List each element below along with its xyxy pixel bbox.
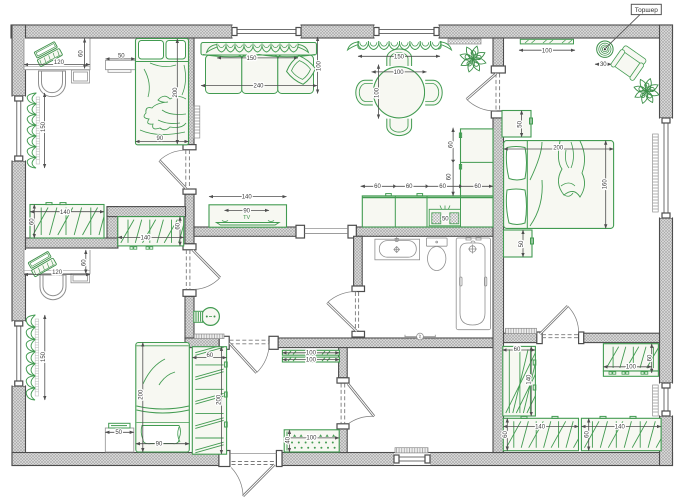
svg-text:60: 60 — [647, 354, 653, 361]
svg-text:TV: TV — [243, 215, 250, 221]
svg-text:140: 140 — [615, 424, 626, 430]
svg-text:60: 60 — [81, 259, 87, 266]
svg-text:40: 40 — [286, 436, 292, 443]
svg-text:60: 60 — [503, 431, 509, 438]
svg-text:100: 100 — [306, 351, 317, 357]
svg-text:150: 150 — [41, 351, 47, 362]
svg-text:100: 100 — [542, 48, 553, 54]
svg-text:100: 100 — [394, 70, 405, 76]
svg-text:50: 50 — [115, 430, 122, 436]
svg-text:100: 100 — [626, 365, 637, 371]
svg-text:240: 240 — [253, 84, 264, 90]
svg-text:60: 60 — [78, 50, 84, 57]
svg-text:200: 200 — [217, 394, 223, 405]
svg-text:60: 60 — [514, 347, 521, 353]
svg-text:50: 50 — [517, 120, 523, 127]
svg-text:120: 120 — [52, 270, 63, 276]
svg-text:140: 140 — [535, 424, 546, 430]
svg-text:60: 60 — [30, 218, 36, 225]
svg-text:140: 140 — [140, 235, 151, 241]
svg-text:90: 90 — [156, 442, 163, 448]
svg-text:60: 60 — [447, 173, 453, 180]
svg-text:50: 50 — [118, 54, 125, 60]
svg-text:100: 100 — [306, 436, 317, 442]
svg-text:200: 200 — [553, 146, 564, 152]
svg-text:60: 60 — [374, 184, 381, 190]
svg-text:200: 200 — [173, 87, 179, 98]
svg-text:60: 60 — [206, 353, 213, 359]
svg-text:100: 100 — [374, 87, 380, 98]
svg-text:90: 90 — [243, 209, 250, 215]
svg-text:30: 30 — [600, 62, 607, 68]
svg-text:150: 150 — [41, 121, 47, 132]
svg-text:60: 60 — [439, 184, 446, 190]
svg-text:60: 60 — [176, 222, 182, 229]
svg-text:120: 120 — [54, 60, 65, 66]
svg-text:60: 60 — [474, 184, 481, 190]
svg-text:90: 90 — [157, 136, 164, 142]
svg-text:60: 60 — [585, 431, 591, 438]
svg-text:150: 150 — [394, 54, 405, 60]
svg-text:50: 50 — [442, 216, 449, 222]
svg-text:100: 100 — [306, 357, 317, 363]
svg-text:140: 140 — [527, 374, 533, 385]
svg-text:200: 200 — [138, 389, 144, 400]
svg-text:100: 100 — [317, 60, 323, 71]
svg-text:60: 60 — [406, 184, 413, 190]
svg-text:140: 140 — [60, 210, 71, 216]
svg-text:150: 150 — [246, 56, 257, 62]
svg-text:Торшер: Торшер — [635, 7, 659, 14]
svg-text:140: 140 — [242, 195, 253, 201]
svg-text:160: 160 — [602, 179, 608, 190]
svg-text:50: 50 — [519, 240, 525, 247]
svg-text:60: 60 — [449, 141, 455, 148]
